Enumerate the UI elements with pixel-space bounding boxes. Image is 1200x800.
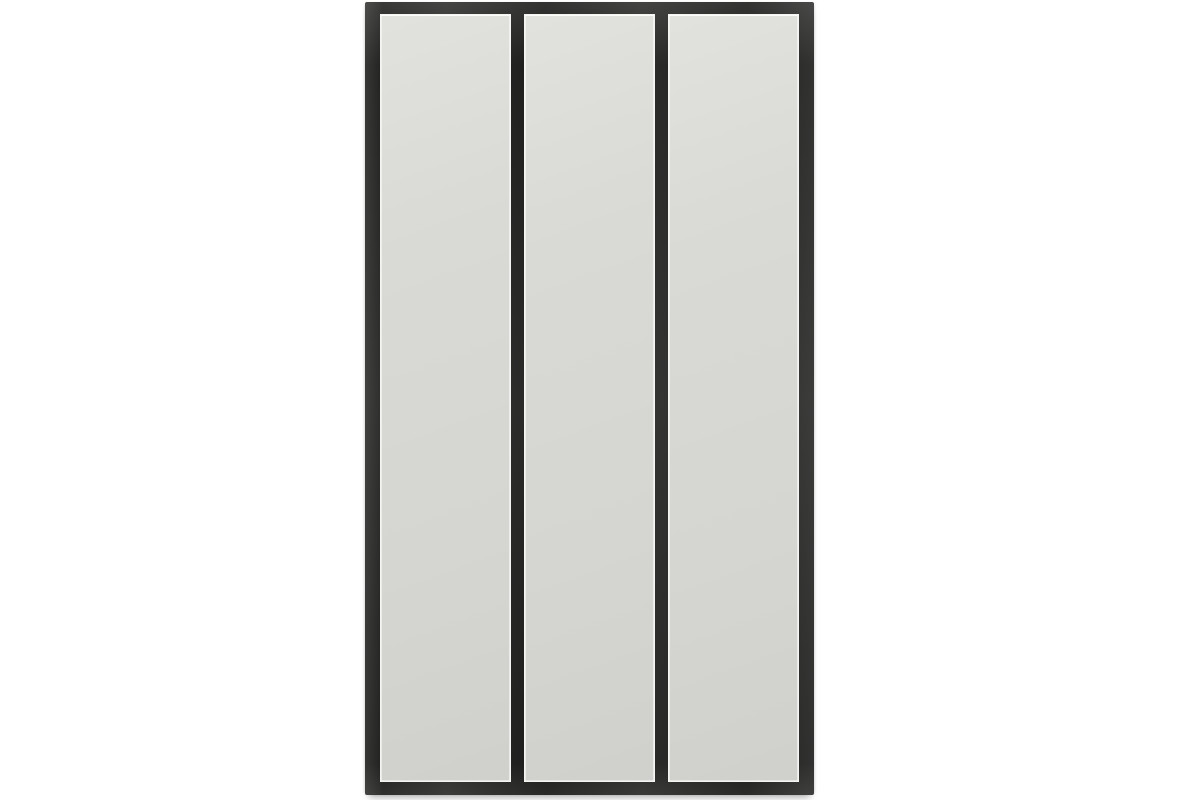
- mirror-panel: [380, 14, 511, 782]
- mirror-frame: [365, 2, 814, 795]
- mirror-panel: [524, 14, 655, 782]
- product-photo-background: [0, 0, 1200, 800]
- mirror-glass-area: [380, 14, 799, 782]
- mirror-panel: [668, 14, 799, 782]
